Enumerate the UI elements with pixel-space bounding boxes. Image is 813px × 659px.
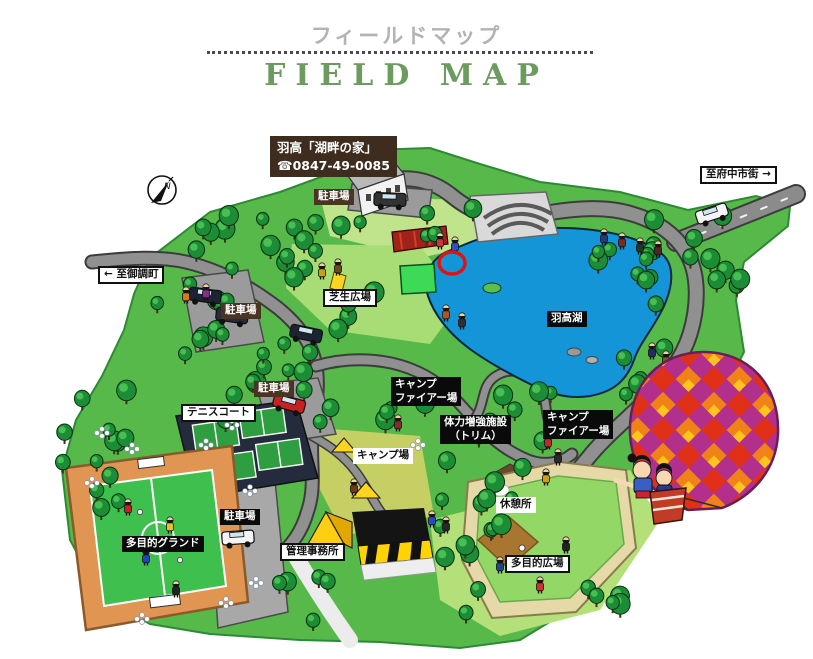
field-map-page: フィールドマップ FIELD MAP [0,0,813,659]
map-label-parking-left: 駐車場 [221,303,261,319]
map-label-tennis-court: テニスコート [181,404,256,422]
map-label-parking-top: 駐車場 [314,189,354,205]
map-label-lake-name: 羽高湖 [547,311,587,327]
map-label-campfire-site-west: キャンプファイアー場 [391,377,461,406]
map-label-rest-area: 休憩所 [496,497,536,513]
map-label-multipurpose-ground: 多目的グランド [122,536,204,552]
map-labels-layer: 駐車場至府中市街 →← 至御調町駐車場芝生広場羽高湖キャンプファイアー場体力増強… [0,0,813,659]
map-label-direction-fuchu: 至府中市街 → [700,166,777,184]
map-label-campfire-site-east: キャンプファイアー場 [543,410,613,439]
map-label-campsite: キャンプ場 [353,448,413,464]
map-label-multipurpose-plaza: 多目的広場 [505,555,570,573]
map-label-admin-office: 管理事務所 [280,543,345,561]
map-label-parking-south: 駐車場 [220,509,260,525]
map-label-direction-mitsugi: ← 至御調町 [98,266,164,284]
map-label-lawn-plaza: 芝生広場 [323,289,377,307]
map-label-trim-facility: 体力増強施設（トリム） [440,415,511,444]
map-label-parking-tennis: 駐車場 [254,381,294,397]
